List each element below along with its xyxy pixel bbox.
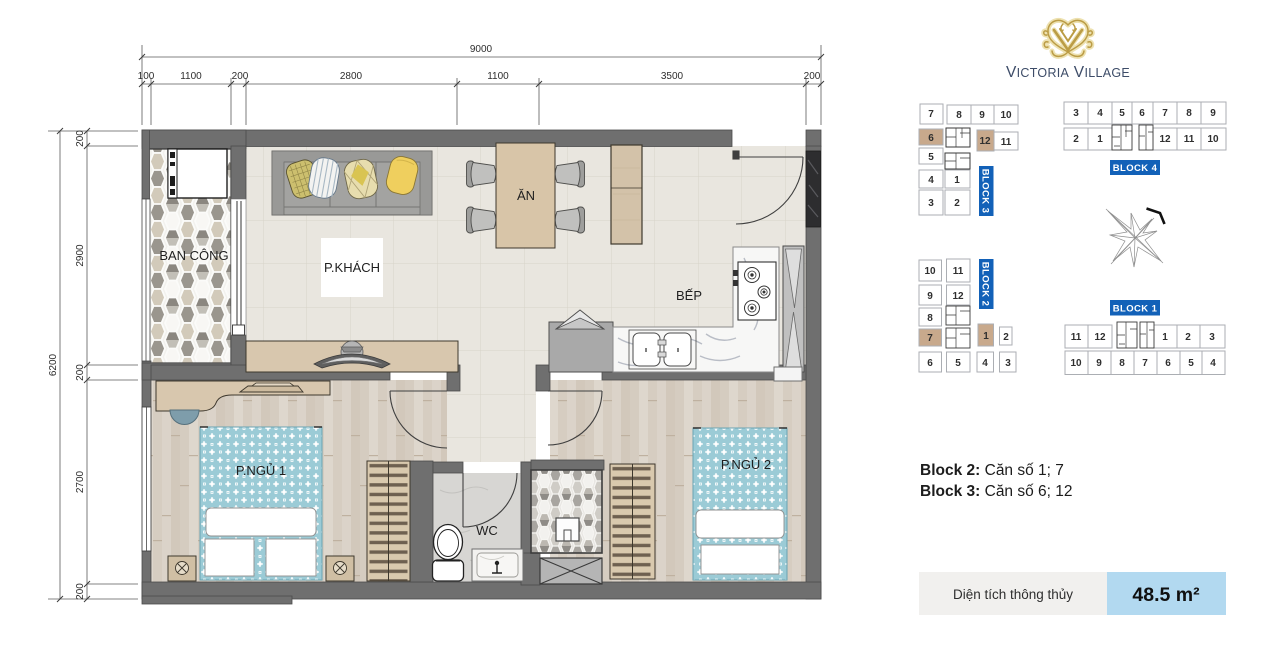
svg-text:200: 200: [232, 71, 249, 82]
svg-text:4: 4: [1210, 358, 1216, 369]
svg-text:Block 2: Căn số 1; 7: Block 2: Căn số 1; 7: [920, 462, 1064, 479]
svg-text:BẾP: BẾP: [676, 288, 702, 303]
svg-text:6: 6: [927, 358, 933, 369]
svg-text:7: 7: [928, 109, 934, 120]
svg-text:5: 5: [955, 358, 961, 369]
svg-text:5: 5: [1119, 108, 1125, 119]
svg-text:10: 10: [1207, 134, 1219, 145]
svg-text:6: 6: [1139, 108, 1145, 119]
svg-text:5: 5: [1188, 358, 1194, 369]
svg-text:9: 9: [927, 291, 933, 302]
svg-text:2900: 2900: [75, 244, 86, 267]
svg-text:11: 11: [1071, 332, 1082, 343]
svg-text:P.NGỦ 2: P.NGỦ 2: [721, 457, 771, 472]
svg-text:12: 12: [952, 291, 964, 302]
svg-text:3: 3: [1073, 108, 1079, 119]
svg-text:BAN CÔNG: BAN CÔNG: [159, 248, 228, 263]
svg-text:2700: 2700: [75, 470, 86, 493]
svg-text:P.NGỦ 1: P.NGỦ 1: [236, 463, 286, 478]
svg-text:1: 1: [983, 331, 989, 342]
svg-text:BLOCK 3: BLOCK 3: [980, 169, 991, 214]
svg-text:5: 5: [928, 152, 934, 163]
svg-text:100: 100: [138, 71, 155, 82]
svg-text:P.KHÁCH: P.KHÁCH: [324, 260, 380, 275]
svg-text:BLOCK 1: BLOCK 1: [1113, 304, 1158, 315]
svg-text:3: 3: [1005, 358, 1011, 369]
svg-text:ĂN: ĂN: [517, 188, 535, 203]
svg-text:7: 7: [927, 333, 933, 344]
svg-text:200: 200: [75, 130, 86, 147]
svg-text:6: 6: [928, 133, 934, 144]
svg-text:3500: 3500: [661, 71, 684, 82]
svg-text:9: 9: [1096, 358, 1102, 369]
svg-text:4: 4: [928, 175, 934, 186]
svg-text:200: 200: [804, 71, 821, 82]
svg-text:8: 8: [956, 110, 962, 121]
svg-text:48.5 m²: 48.5 m²: [1132, 584, 1200, 606]
svg-text:1100: 1100: [180, 71, 202, 82]
svg-text:1: 1: [1162, 332, 1168, 343]
svg-text:10: 10: [924, 266, 936, 277]
svg-text:8: 8: [927, 313, 933, 324]
svg-text:4: 4: [1097, 108, 1103, 119]
svg-text:12: 12: [979, 136, 991, 147]
svg-text:6: 6: [1165, 358, 1171, 369]
svg-text:12: 12: [1159, 134, 1171, 145]
svg-text:7: 7: [1142, 358, 1148, 369]
svg-text:12: 12: [1094, 332, 1106, 343]
svg-text:2: 2: [1073, 134, 1079, 145]
svg-text:11: 11: [1184, 134, 1195, 145]
svg-text:3: 3: [928, 198, 934, 209]
svg-text:4: 4: [982, 358, 988, 369]
svg-text:11: 11: [953, 266, 964, 277]
svg-text:1: 1: [954, 175, 960, 186]
svg-text:8: 8: [1119, 358, 1125, 369]
svg-text:3: 3: [1209, 332, 1215, 343]
svg-text:2: 2: [1003, 332, 1009, 343]
svg-text:2: 2: [954, 198, 960, 209]
svg-text:Block 3: Căn số 6; 12: Block 3: Căn số 6; 12: [920, 483, 1073, 500]
svg-text:BLOCK 2: BLOCK 2: [980, 262, 991, 307]
svg-text:VICTORIA VILLAGE: VICTORIA VILLAGE: [1006, 64, 1130, 81]
svg-text:11: 11: [1001, 137, 1012, 148]
svg-text:8: 8: [1186, 108, 1192, 119]
svg-text:200: 200: [75, 583, 86, 600]
svg-text:10: 10: [1070, 358, 1082, 369]
svg-text:2800: 2800: [340, 71, 363, 82]
svg-text:WC: WC: [476, 523, 498, 538]
svg-text:2: 2: [1185, 332, 1191, 343]
svg-text:10: 10: [1000, 110, 1012, 121]
svg-text:1100: 1100: [487, 71, 509, 82]
svg-text:6200: 6200: [48, 353, 59, 376]
svg-text:BLOCK 4: BLOCK 4: [1113, 163, 1158, 174]
svg-text:1: 1: [1097, 134, 1103, 145]
svg-text:7: 7: [1162, 108, 1168, 119]
svg-text:9000: 9000: [470, 44, 493, 55]
svg-text:9: 9: [979, 110, 985, 121]
svg-text:200: 200: [75, 364, 86, 381]
svg-text:Diện tích thông thủy: Diện tích thông thủy: [953, 587, 1073, 602]
svg-text:9: 9: [1210, 108, 1216, 119]
